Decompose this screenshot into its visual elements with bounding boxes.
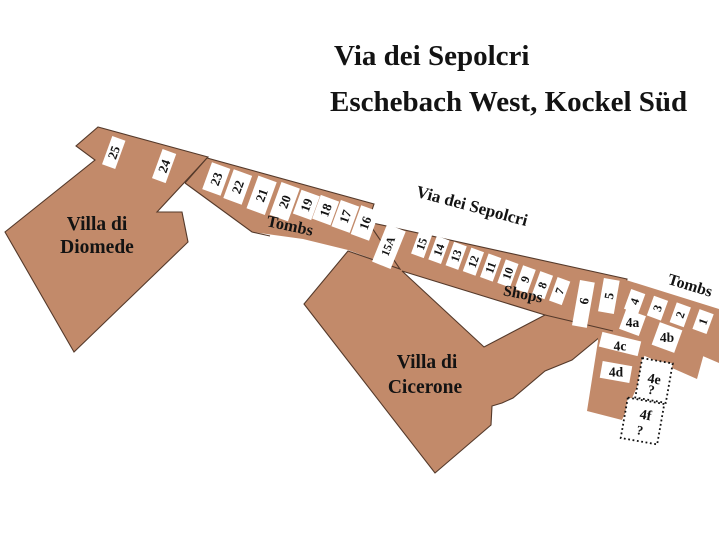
svg-text:4d: 4d [609,365,624,380]
svg-text:4c: 4c [614,339,627,354]
svg-text:Eschebach West, Kockel Süd: Eschebach West, Kockel Süd [330,86,687,118]
svg-text:Via dei Sepolcri: Via dei Sepolcri [334,40,529,72]
svg-text:4a: 4a [626,315,640,330]
svg-text:Diomede: Diomede [60,237,134,258]
svg-text:Villa di: Villa di [397,352,458,373]
svg-text:4b: 4b [660,330,674,345]
svg-text:Cicerone: Cicerone [388,377,463,398]
svg-text:Via dei Sepolcri: Via dei Sepolcri [414,182,530,230]
svg-text:Villa di: Villa di [67,214,128,235]
